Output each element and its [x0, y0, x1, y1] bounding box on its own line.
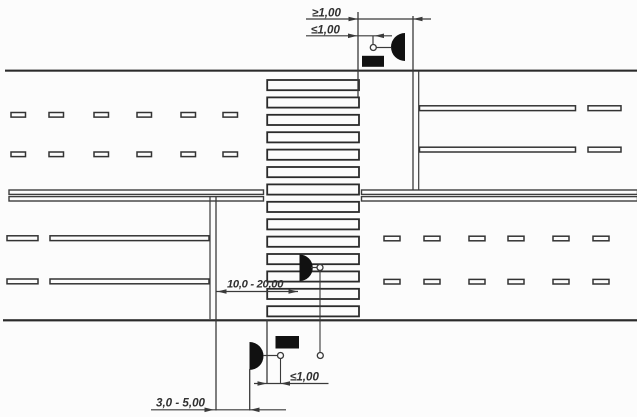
svg-text:≤1,00: ≤1,00 [290, 371, 319, 384]
svg-text:3,0 - 5,00: 3,0 - 5,00 [156, 397, 206, 410]
svg-text:≥1,00: ≥1,00 [312, 7, 341, 20]
svg-text:10,0 - 20,00: 10,0 - 20,00 [227, 279, 284, 291]
svg-text:≤1,00: ≤1,00 [311, 24, 340, 37]
